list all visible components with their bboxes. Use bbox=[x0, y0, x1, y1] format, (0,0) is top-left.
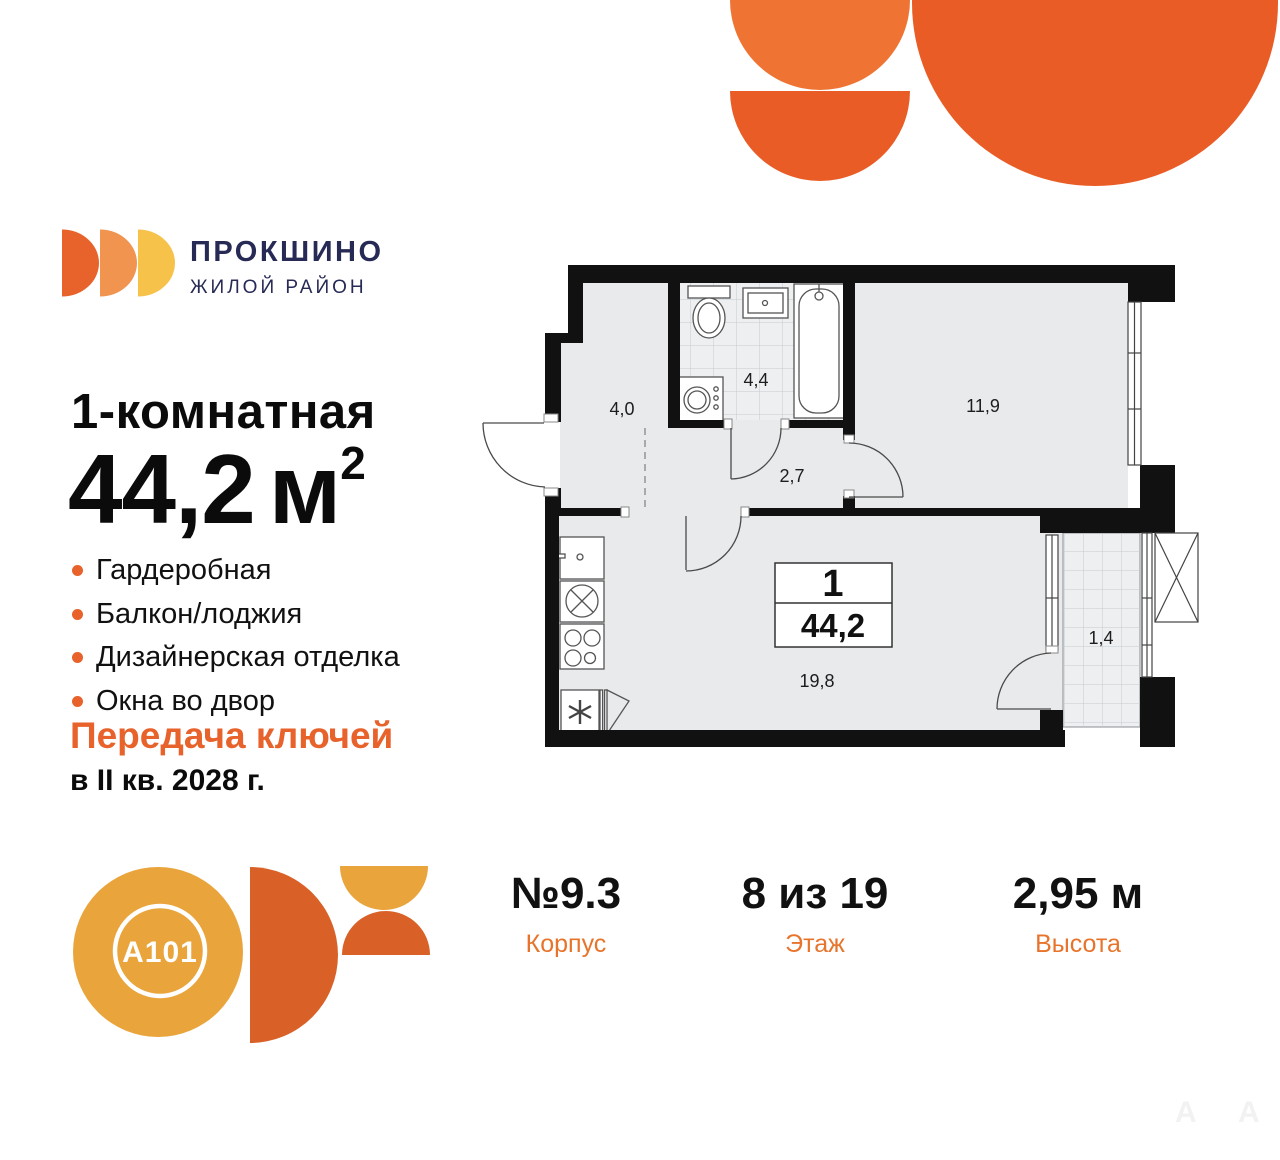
brand-arc-3 bbox=[138, 230, 175, 297]
brand-logo-icon bbox=[60, 228, 175, 298]
feature-list: Гардеробная Балкон/лоджия Дизайнерская о… bbox=[70, 549, 400, 723]
deco-circles-top-right bbox=[700, 0, 1280, 200]
brand-tagline: ЖИЛОЙ РАЙОН bbox=[190, 278, 384, 297]
area-headline: 44,2м2 bbox=[68, 440, 366, 538]
feature-label: Гардеробная bbox=[96, 554, 271, 586]
room-label-bedroom: 11,9 bbox=[966, 396, 1000, 416]
bullet-icon bbox=[72, 609, 83, 620]
feature-label: Балкон/лоджия bbox=[96, 598, 302, 630]
handover-title: Передача ключей bbox=[70, 717, 393, 754]
developer-semicircle-gold bbox=[340, 866, 428, 910]
bullet-icon bbox=[72, 565, 83, 576]
entrance-door bbox=[483, 423, 545, 487]
developer-logo-text: A101 bbox=[122, 936, 198, 969]
brand-arc-1 bbox=[62, 230, 99, 297]
toilet-tank bbox=[688, 286, 730, 298]
bullet-icon bbox=[72, 696, 83, 707]
room-label-corridor: 2,7 bbox=[779, 466, 804, 486]
listing-card: ПРОКШИНО ЖИЛОЙ РАЙОН 1-комнатная 44,2м2 … bbox=[0, 0, 1280, 1160]
stat-height-value: 2,95 м bbox=[1013, 872, 1143, 916]
room-label-hallway: 4,0 bbox=[609, 399, 634, 419]
stat-height-label: Высота bbox=[1013, 932, 1143, 957]
bullet-icon bbox=[72, 652, 83, 663]
floorplan-svg: 1 44,2 4,0 4,4 2,7 11,9 19,8 1,4 bbox=[450, 255, 1210, 760]
plan-area: 44,2 bbox=[801, 607, 865, 644]
room-label-bathroom: 4,4 bbox=[743, 370, 768, 390]
feature-item: Гардеробная bbox=[70, 549, 400, 593]
developer-halfdisc bbox=[250, 867, 338, 1043]
developer-semicircle-rust bbox=[342, 911, 430, 955]
page-title: 1-комнатная bbox=[71, 388, 376, 437]
stat-building-value: №9.3 bbox=[511, 872, 621, 916]
watermark-letter: A bbox=[1175, 1098, 1197, 1128]
area-superscript: 2 bbox=[340, 437, 366, 489]
feature-item: Балкон/лоджия bbox=[70, 593, 400, 637]
area-value: 44,2 bbox=[68, 434, 255, 544]
stat-building: №9.3 Корпус bbox=[511, 872, 621, 957]
brand-arc-2 bbox=[100, 230, 137, 297]
plan-number: 1 bbox=[822, 563, 843, 605]
feature-item: Дизайнерская отделка bbox=[70, 636, 400, 680]
brand-text-block: ПРОКШИНО ЖИЛОЙ РАЙОН bbox=[190, 238, 384, 297]
plan-info-box: 1 44,2 bbox=[775, 563, 892, 647]
room-label-balcony: 1,4 bbox=[1088, 628, 1113, 648]
stat-floor-label: Этаж bbox=[742, 932, 889, 957]
stat-building-label: Корпус bbox=[511, 932, 621, 957]
feature-label: Дизайнерская отделка bbox=[96, 641, 400, 673]
developer-logo: A101 bbox=[55, 855, 445, 1055]
deco-semicircle-light bbox=[730, 0, 910, 90]
area-unit: м bbox=[269, 434, 341, 544]
deco-big-circle bbox=[912, 0, 1278, 186]
stat-floor: 8 из 19 Этаж bbox=[742, 872, 889, 957]
brand-name: ПРОКШИНО bbox=[190, 238, 384, 267]
room-label-kitchen-living: 19,8 bbox=[799, 671, 834, 691]
stat-floor-value: 8 из 19 bbox=[742, 872, 889, 916]
handover-date: в II кв. 2028 г. bbox=[70, 766, 265, 796]
feature-label: Окна во двор bbox=[96, 685, 275, 717]
deco-semicircle-dark bbox=[730, 91, 910, 181]
stat-height: 2,95 м Высота bbox=[1013, 872, 1143, 957]
watermark-letter: A bbox=[1238, 1098, 1260, 1128]
